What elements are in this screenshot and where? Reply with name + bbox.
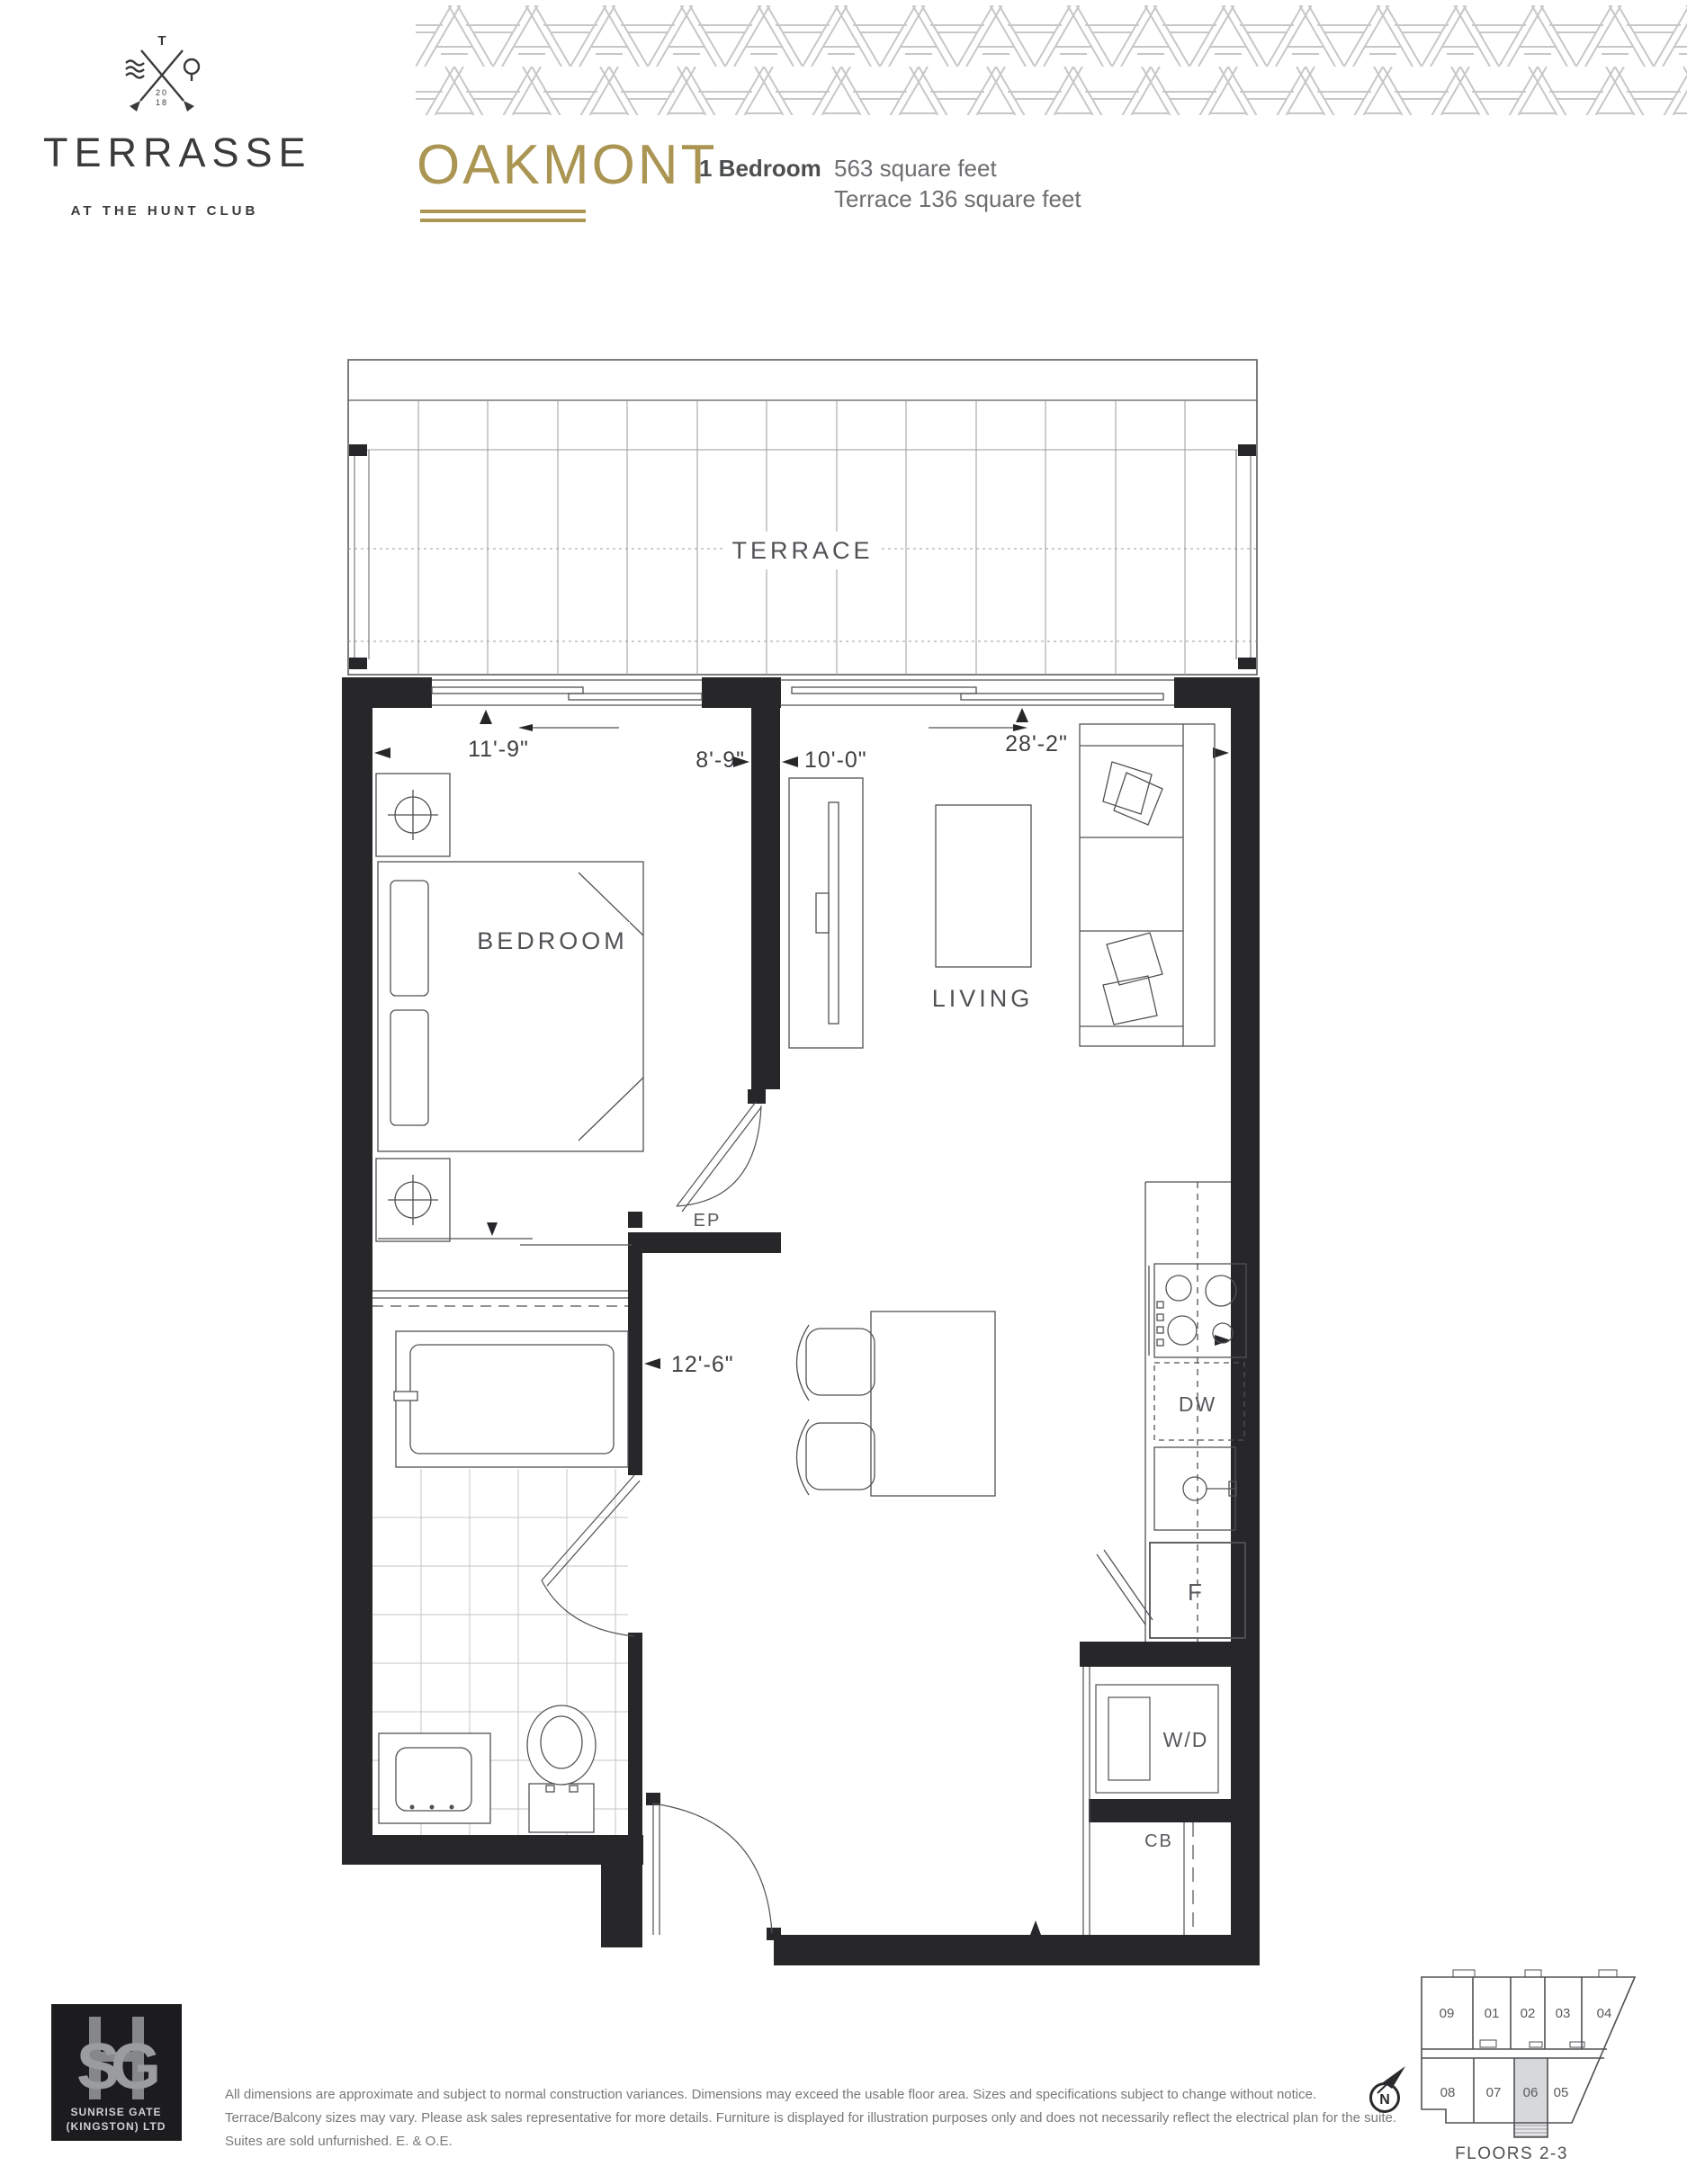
suite-02: 02: [1521, 2006, 1536, 2021]
suite-03: 03: [1556, 2006, 1571, 2021]
ep-label: EP: [694, 1211, 722, 1231]
gold-rule-bottom: [420, 219, 586, 222]
disclaimer-line3: Suites are sold unfurnished. E. & O.E.: [225, 2130, 1396, 2153]
tv-unit: [789, 778, 863, 1048]
unit-terrace-area: Terrace 136 square feet: [834, 183, 1081, 214]
dim-overall-width: 28'-2": [1005, 731, 1068, 756]
cb-label: CB: [1144, 1831, 1173, 1851]
north-label: N: [1379, 2092, 1390, 2108]
terrace-label: TERRACE: [731, 537, 873, 564]
entry-threshold-arrow: [1030, 1920, 1041, 1935]
bedroom-furniture: [372, 774, 643, 1306]
sofa: [1080, 724, 1215, 1046]
closet-slide-arrow: [487, 1222, 498, 1236]
crest-initial: T: [157, 33, 166, 49]
terrasse-crest-icon: T 20 18: [117, 27, 207, 117]
washer-dryer-label: W/D: [1163, 1728, 1209, 1751]
unit-type: 1 Bedroom: [699, 155, 821, 183]
suite-01: 01: [1485, 2006, 1500, 2021]
disclaimer: All dimensions are approximate and subje…: [225, 2083, 1396, 2153]
svg-text:G: G: [111, 2031, 161, 2103]
brand-tagline: AT THE HUNT CLUB: [43, 203, 286, 219]
suite-06: 06: [1523, 2085, 1539, 2100]
crest-year-bottom: 18: [156, 98, 168, 107]
dishwasher-label: DW: [1179, 1392, 1216, 1416]
dim-living-depth: 10'-0": [804, 747, 867, 773]
unit-areas: 563 square feet Terrace 136 square feet: [834, 153, 1081, 214]
living-window: [780, 680, 1174, 728]
floors-label: FLOORS 2-3: [1455, 2144, 1568, 2163]
unit-area: 563 square feet: [834, 153, 1081, 183]
bedroom-label: BEDROOM: [477, 927, 628, 954]
sunrise-gate-logo: S G SUNRISE GATE (KINGSTON) LTD: [51, 2004, 182, 2141]
kitchen: [1097, 1182, 1246, 1642]
bath-door: [542, 1475, 640, 1636]
brand-wordmark: TERRASSE: [43, 130, 312, 176]
entry-door: [653, 1804, 772, 1935]
suite-08: 08: [1440, 2085, 1456, 2100]
north-compass-icon: N: [1371, 2066, 1406, 2112]
living-label: LIVING: [932, 985, 1034, 1012]
fridge-label: F: [1188, 1579, 1204, 1606]
dim-bedroom-window: 11'-9": [468, 737, 529, 762]
floor-plan: TERRACE: [342, 355, 1278, 1997]
logo-line2: (KINGSTON) LTD: [67, 2120, 166, 2133]
dim-hall-width: 12'-6": [671, 1352, 734, 1377]
suite-09: 09: [1440, 2006, 1455, 2021]
bedroom-window: [432, 680, 702, 728]
gold-rule-top: [420, 210, 586, 213]
dimensions: 11'-9" 8'-9" 10'-0" 28'-2" 12'-6": [374, 708, 1231, 1377]
crest-year-top: 20: [156, 88, 168, 97]
bedroom-door: [677, 1102, 761, 1212]
coffee-table: [936, 805, 1031, 967]
dining-set: [797, 1311, 996, 1496]
bathroom: [372, 1331, 640, 1835]
disclaimer-line2: Terrace/Balcony sizes may vary. Please a…: [225, 2107, 1396, 2130]
unit-name: OAKMONT: [417, 133, 717, 197]
suite-05: 05: [1554, 2085, 1569, 2100]
living-window-slide-arrow: [1013, 724, 1027, 731]
logo-line1: SUNRISE GATE: [70, 2106, 161, 2118]
suite-07: 07: [1486, 2085, 1502, 2100]
key-plan: 09 01 02 03 04 08 07 06 05 FLOORS 2-3 N: [1345, 1934, 1687, 2184]
disclaimer-line1: All dimensions are approximate and subje…: [225, 2083, 1396, 2107]
geometric-pattern-band: [416, 0, 1687, 120]
terrace-grid: TERRACE: [348, 360, 1257, 675]
bedroom-window-slide-arrow: [518, 724, 533, 731]
floorplan-sheet: T 20 18 TERRASSE AT THE HUNT CLUB OAKMON…: [0, 0, 1687, 2184]
suite-04: 04: [1597, 2006, 1612, 2021]
